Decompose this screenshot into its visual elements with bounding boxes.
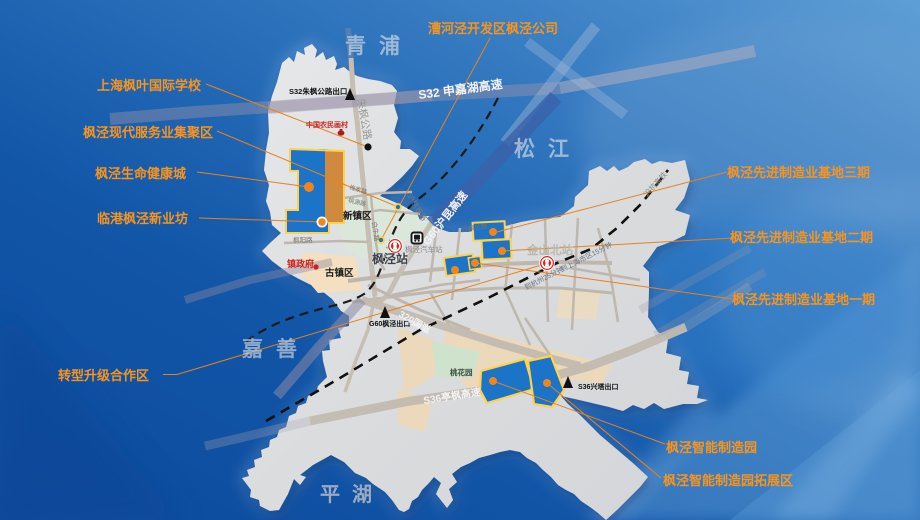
svg-text:新镇区: 新镇区 <box>343 210 372 222</box>
svg-text:松江: 松江 <box>514 137 582 161</box>
svg-text:枫泾先进制造业基地二期: 枫泾先进制造业基地二期 <box>730 230 873 245</box>
svg-text:青浦: 青浦 <box>345 34 413 58</box>
svg-text:镇政府: 镇政府 <box>287 258 314 269</box>
svg-text:S36兴塔出口: S36兴塔出口 <box>578 382 618 391</box>
svg-text:漕河泾开发区枫泾公司: 漕河泾开发区枫泾公司 <box>428 21 558 36</box>
svg-text:枫泾生命健康城: 枫泾生命健康城 <box>95 166 186 181</box>
svg-text:转型升级合作区: 转型升级合作区 <box>58 368 149 383</box>
svg-text:平湖: 平湖 <box>320 483 384 506</box>
svg-text:中国农民画村: 中国农民画村 <box>306 120 348 129</box>
svg-text:枫泾先进制造业基地一期: 枫泾先进制造业基地一期 <box>732 292 875 307</box>
svg-text:枫阳路: 枫阳路 <box>293 235 313 244</box>
svg-text:枫泾站: 枫泾站 <box>372 251 408 266</box>
svg-text:枫泾智能制造园拓展区: 枫泾智能制造园拓展区 <box>663 473 793 488</box>
svg-text:临港枫泾新业坊: 临港枫泾新业坊 <box>97 211 188 226</box>
svg-text:枫泾智能制造园: 枫泾智能制造园 <box>666 440 757 455</box>
svg-text:嘉善: 嘉善 <box>242 337 310 361</box>
svg-text:枫泾现代服务业集聚区: 枫泾现代服务业集聚区 <box>83 125 213 140</box>
svg-text:古镇区: 古镇区 <box>325 267 354 279</box>
svg-text:枫泾汽车站: 枫泾汽车站 <box>405 244 443 254</box>
svg-text:S32朱枫公路出口: S32朱枫公路出口 <box>289 86 347 96</box>
svg-text:上海枫叶国际学校: 上海枫叶国际学校 <box>97 78 202 93</box>
svg-text:桃花园: 桃花园 <box>450 367 473 377</box>
svg-text:枫泾先进制造业基地三期: 枫泾先进制造业基地三期 <box>727 165 870 180</box>
svg-text:金山北站: 金山北站 <box>526 243 573 257</box>
